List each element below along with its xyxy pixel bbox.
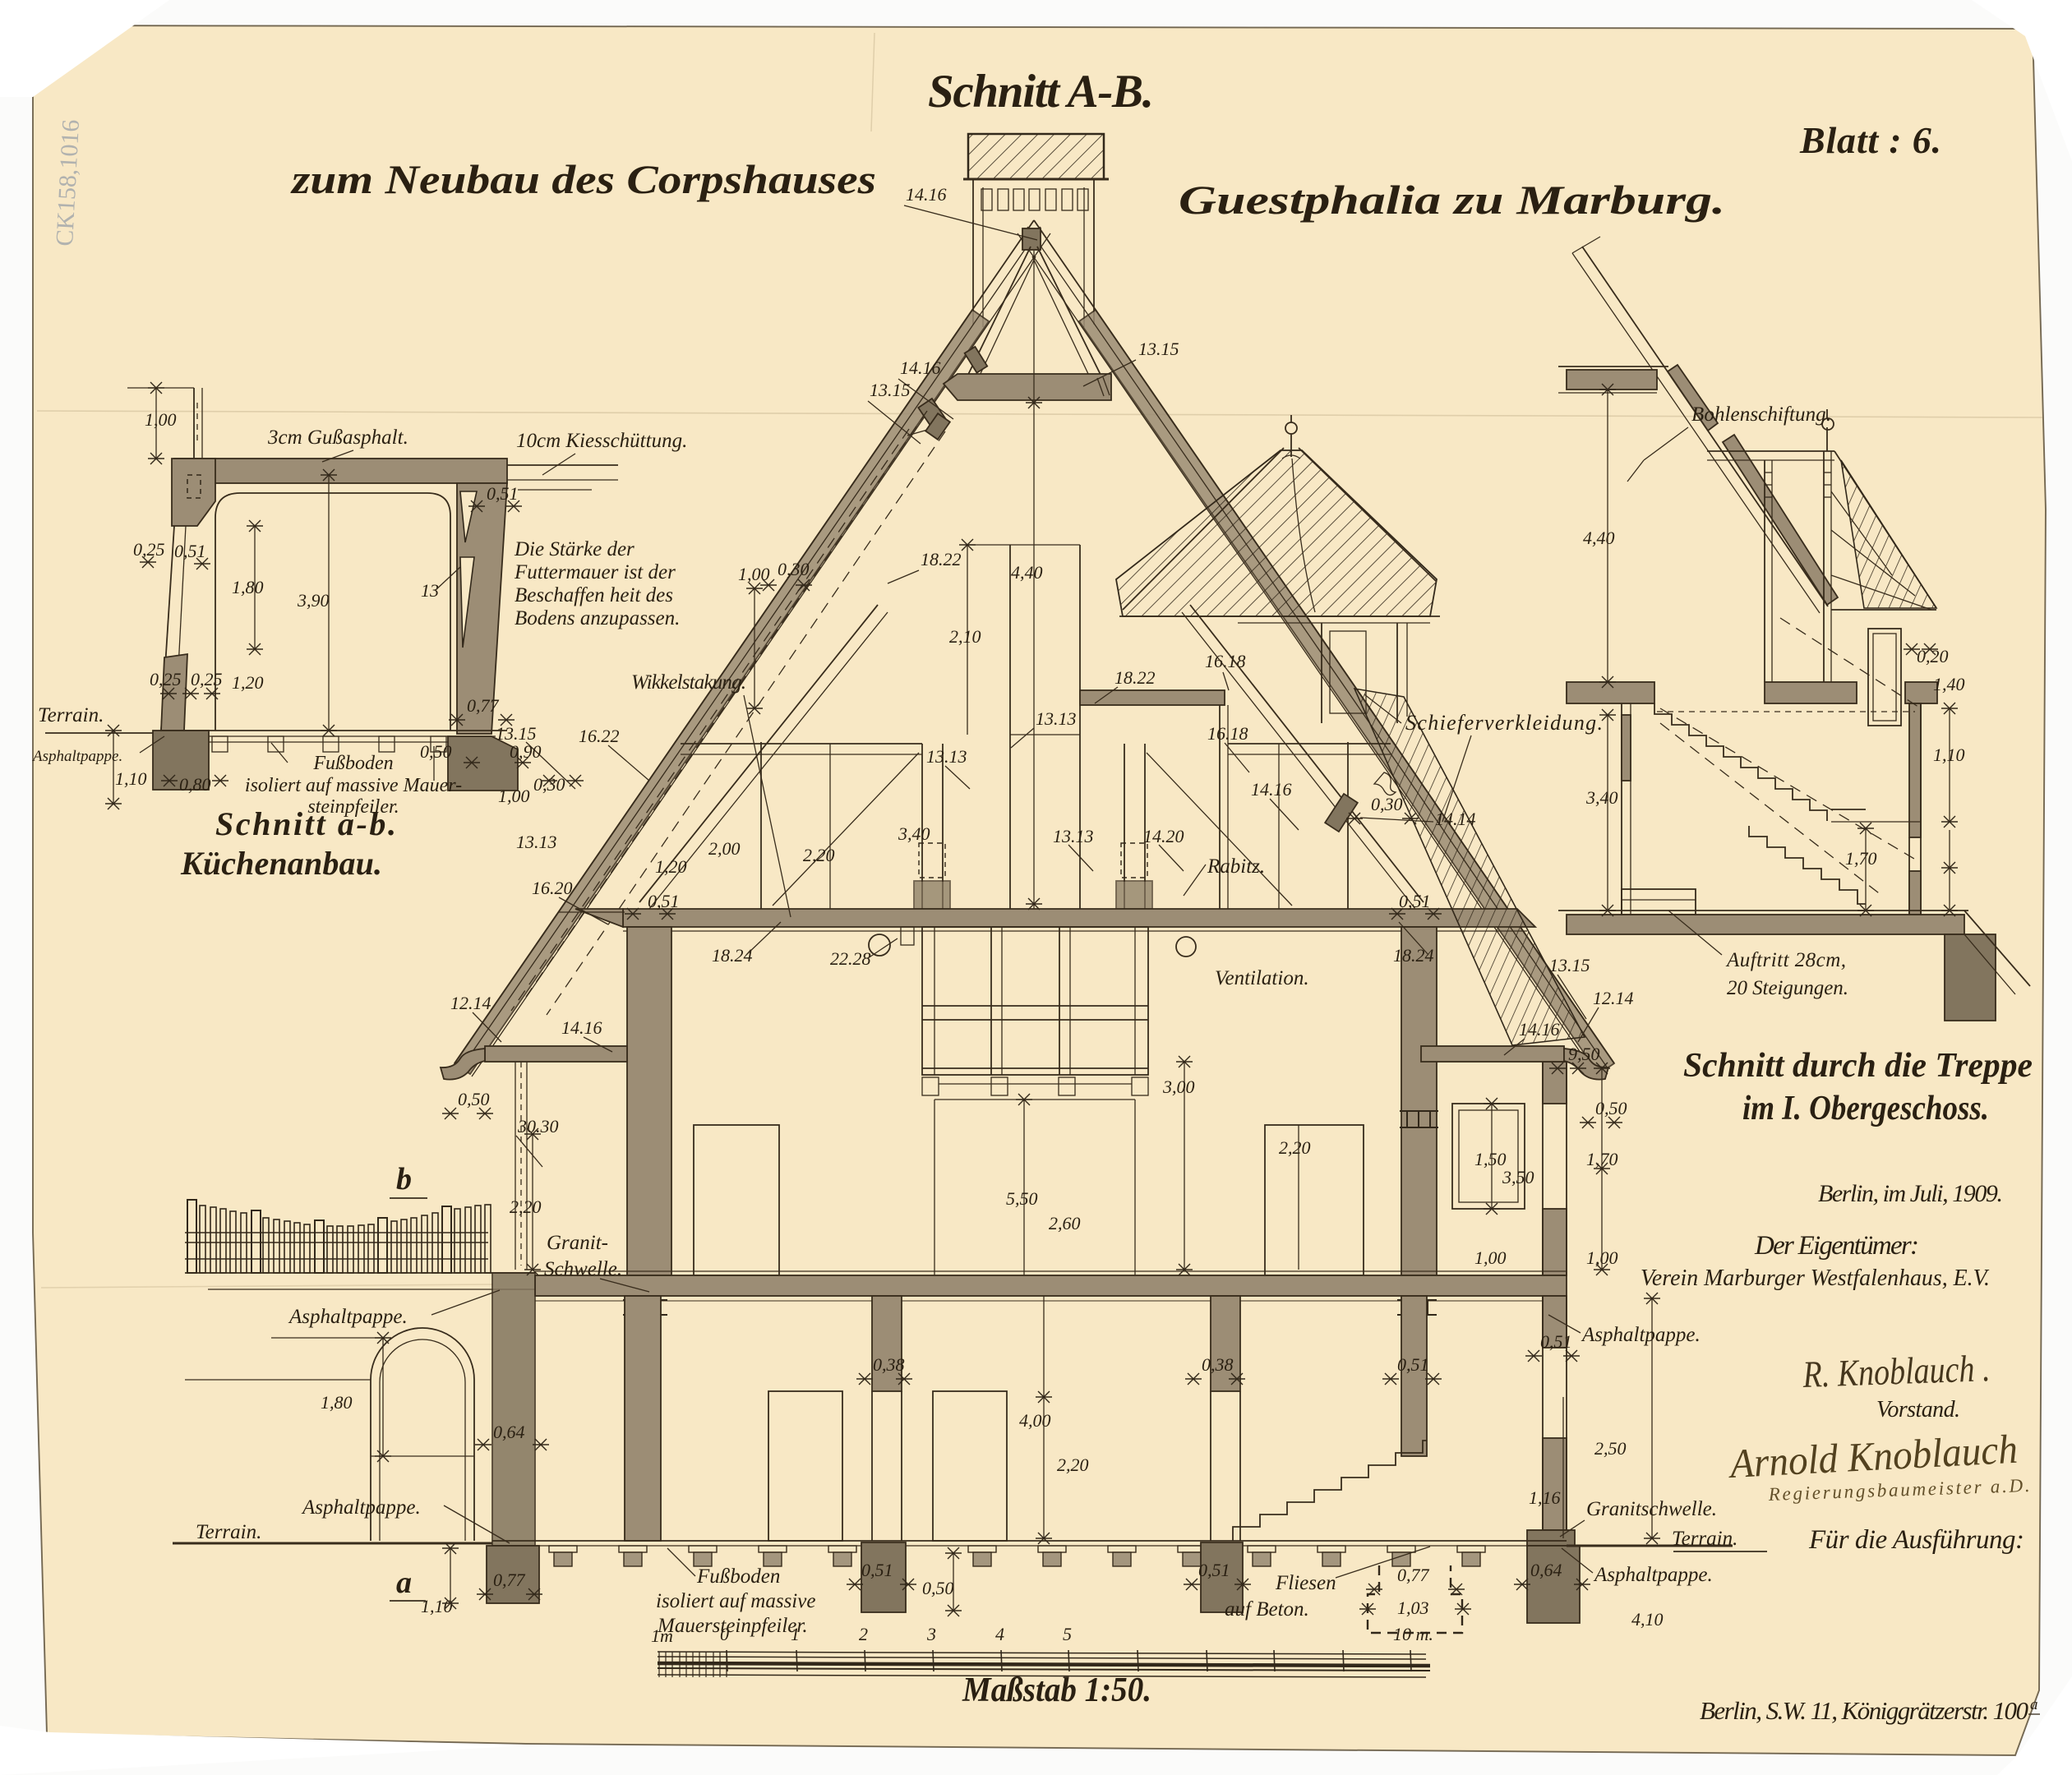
svg-text:5: 5 xyxy=(1063,1624,1072,1644)
svg-text:14.16: 14.16 xyxy=(561,1017,602,1038)
svg-text:Der Eigentümer:: Der Eigentümer: xyxy=(1754,1231,1919,1261)
svg-text:Berlin, im Juli, 1909.: Berlin, im Juli, 1909. xyxy=(1818,1180,2003,1207)
svg-text:Futtermauer ist der: Futtermauer ist der xyxy=(514,561,676,583)
svg-text:3,00: 3,00 xyxy=(1162,1077,1195,1097)
svg-text:10 m.: 10 m. xyxy=(1393,1624,1433,1644)
svg-text:14.16: 14.16 xyxy=(1519,1019,1560,1040)
svg-text:13.13: 13.13 xyxy=(926,746,967,767)
svg-text:Beschaffen heit des: Beschaffen heit des xyxy=(515,584,673,606)
svg-text:14.20: 14.20 xyxy=(1143,826,1184,846)
svg-text:Bohlenschiftung.: Bohlenschiftung. xyxy=(1691,403,1831,426)
svg-text:0,90: 0,90 xyxy=(510,741,542,762)
svg-text:0,38: 0,38 xyxy=(873,1354,905,1375)
svg-text:13.15: 13.15 xyxy=(870,380,911,400)
svg-text:9,50: 9,50 xyxy=(1568,1044,1600,1064)
svg-text:0,25: 0,25 xyxy=(191,669,223,689)
svg-text:0,50: 0,50 xyxy=(420,741,452,762)
svg-text:13.13: 13.13 xyxy=(516,832,557,852)
svg-text:Auftritt 28cm,: Auftritt 28cm, xyxy=(1725,949,1846,971)
svg-text:30.30: 30.30 xyxy=(517,1116,559,1136)
svg-text:Fliesen: Fliesen xyxy=(1275,1572,1336,1594)
svg-text:5,50: 5,50 xyxy=(1006,1188,1038,1209)
svg-text:isoliert auf massive: isoliert auf massive xyxy=(656,1590,815,1612)
svg-text:im I. Obergeschoss.: im I. Obergeschoss. xyxy=(1742,1090,1989,1127)
svg-text:0,77: 0,77 xyxy=(467,695,500,716)
svg-text:Für die Ausführung:: Für die Ausführung: xyxy=(1808,1525,2024,1555)
svg-text:14.16: 14.16 xyxy=(1251,779,1292,800)
svg-text:18.22: 18.22 xyxy=(1114,667,1156,688)
svg-text:18.24: 18.24 xyxy=(712,945,753,966)
svg-text:Schieferverkleidung.: Schieferverkleidung. xyxy=(1405,711,1603,735)
svg-text:18.22: 18.22 xyxy=(921,549,962,569)
svg-text:0,51: 0,51 xyxy=(1540,1331,1572,1352)
svg-text:13.15: 13.15 xyxy=(1138,339,1179,359)
svg-text:1,03: 1,03 xyxy=(1397,1597,1429,1618)
svg-text:14.14: 14.14 xyxy=(1435,809,1476,829)
svg-text:isoliert auf massive Mauer-: isoliert auf massive Mauer- xyxy=(245,775,462,796)
svg-text:1,00: 1,00 xyxy=(1474,1247,1507,1268)
svg-text:Granitschwelle.: Granitschwelle. xyxy=(1586,1498,1717,1520)
svg-text:4,00: 4,00 xyxy=(1019,1410,1051,1431)
svg-text:R. Knoblauch .: R. Knoblauch . xyxy=(1802,1347,1991,1395)
svg-text:Schnitt a-b.: Schnitt a-b. xyxy=(215,805,396,842)
svg-text:1,40: 1,40 xyxy=(1933,674,1965,694)
svg-text:0,51: 0,51 xyxy=(1198,1560,1230,1580)
svg-text:3,40: 3,40 xyxy=(1585,787,1618,808)
svg-text:1,16: 1,16 xyxy=(1529,1487,1561,1508)
svg-text:0,30: 0,30 xyxy=(533,774,565,795)
svg-text:Schwelle.: Schwelle. xyxy=(544,1258,622,1280)
svg-text:1,10: 1,10 xyxy=(115,768,147,789)
svg-text:2,20: 2,20 xyxy=(1279,1137,1311,1158)
svg-text:2,20: 2,20 xyxy=(510,1196,542,1217)
svg-text:0,77: 0,77 xyxy=(1397,1565,1430,1585)
svg-text:2: 2 xyxy=(859,1624,868,1644)
svg-text:12.14: 12.14 xyxy=(1593,988,1634,1008)
svg-text:16.20: 16.20 xyxy=(532,878,573,898)
svg-text:a: a xyxy=(2030,1696,2038,1713)
svg-text:0,30: 0,30 xyxy=(1371,794,1403,814)
svg-text:1: 1 xyxy=(791,1624,800,1644)
svg-text:Guestphalia zu Marburg.: Guestphalia zu Marburg. xyxy=(1179,177,1725,223)
svg-text:Fußboden: Fußboden xyxy=(696,1565,780,1588)
svg-text:1m: 1m xyxy=(651,1625,673,1646)
svg-text:Asphaltpappe.: Asphaltpappe. xyxy=(301,1496,421,1519)
svg-text:4,40: 4,40 xyxy=(1011,562,1043,583)
svg-text:Wikkelstakung.: Wikkelstakung. xyxy=(631,671,746,694)
svg-text:18.24: 18.24 xyxy=(1393,945,1434,966)
svg-text:Terrain.: Terrain. xyxy=(38,704,104,726)
svg-text:0,50: 0,50 xyxy=(922,1578,954,1598)
svg-text:Verein Marburger Westfalenhaus: Verein Marburger Westfalenhaus, E.V. xyxy=(1641,1265,1990,1291)
svg-text:4,40: 4,40 xyxy=(1583,528,1615,548)
svg-text:0,64: 0,64 xyxy=(493,1422,525,1442)
svg-text:zum Neubau des Corpshauses: zum Neubau des Corpshauses xyxy=(290,156,876,202)
svg-text:0,77: 0,77 xyxy=(493,1570,526,1590)
svg-text:Fußboden: Fußboden xyxy=(312,753,393,774)
svg-text:Blatt : 6.: Blatt : 6. xyxy=(1799,119,1941,161)
svg-text:16.18: 16.18 xyxy=(1207,723,1248,744)
svg-text:1,80: 1,80 xyxy=(321,1392,353,1413)
svg-text:Asphaltpappe.: Asphaltpappe. xyxy=(1593,1564,1713,1586)
svg-text:Schnitt durch die Treppe: Schnitt durch die Treppe xyxy=(1683,1047,2033,1085)
svg-text:Vorstand.: Vorstand. xyxy=(1876,1397,1960,1422)
svg-text:b: b xyxy=(396,1162,412,1196)
svg-text:0,51: 0,51 xyxy=(487,483,519,504)
svg-text:Asphaltpappe.: Asphaltpappe. xyxy=(288,1306,408,1328)
svg-text:13.15: 13.15 xyxy=(1549,955,1590,975)
svg-text:Granit-: Granit- xyxy=(547,1232,608,1254)
svg-text:Asphaltpappe.: Asphaltpappe. xyxy=(31,748,122,765)
svg-text:16.22: 16.22 xyxy=(579,726,620,746)
svg-text:Schnitt A-B.: Schnitt A-B. xyxy=(928,66,1154,118)
svg-text:0: 0 xyxy=(720,1624,729,1644)
svg-text:2,50: 2,50 xyxy=(1594,1438,1627,1459)
svg-text:0,51: 0,51 xyxy=(648,891,680,911)
svg-text:1,70: 1,70 xyxy=(1845,848,1877,869)
svg-text:20 Steigungen.: 20 Steigungen. xyxy=(1727,977,1848,999)
svg-text:1,50: 1,50 xyxy=(1474,1149,1507,1169)
svg-text:Mauersteinpfeiler.: Mauersteinpfeiler. xyxy=(657,1615,808,1637)
svg-text:0,25: 0,25 xyxy=(133,539,165,560)
svg-text:1,10: 1,10 xyxy=(1933,745,1965,765)
svg-text:4,10: 4,10 xyxy=(1631,1609,1664,1630)
svg-text:2,60: 2,60 xyxy=(1049,1213,1081,1233)
svg-text:10cm Kiesschüttung.: 10cm Kiesschüttung. xyxy=(516,430,687,452)
svg-text:0,51: 0,51 xyxy=(861,1560,893,1580)
svg-text:0,51: 0,51 xyxy=(1397,1354,1429,1375)
svg-text:1,80: 1,80 xyxy=(232,577,264,597)
svg-text:0,51: 0,51 xyxy=(174,541,206,561)
svg-text:0,25: 0,25 xyxy=(150,669,182,689)
svg-text:a: a xyxy=(396,1565,412,1600)
svg-text:0,50: 0,50 xyxy=(458,1089,490,1109)
svg-text:Terrain.: Terrain. xyxy=(1672,1528,1737,1550)
svg-text:2,00: 2,00 xyxy=(708,838,741,859)
svg-text:4: 4 xyxy=(995,1624,1004,1644)
svg-text:3cm Gußasphalt.: 3cm Gußasphalt. xyxy=(267,426,408,449)
svg-text:14.16: 14.16 xyxy=(900,357,941,378)
svg-text:3: 3 xyxy=(926,1624,936,1644)
svg-text:0,38: 0,38 xyxy=(1202,1354,1234,1375)
svg-text:Maßstab 1:50.: Maßstab 1:50. xyxy=(962,1671,1151,1709)
svg-text:13.13: 13.13 xyxy=(1053,826,1094,846)
svg-text:0,30: 0,30 xyxy=(778,559,810,579)
svg-text:13: 13 xyxy=(421,580,439,601)
svg-text:Rabitz.: Rabitz. xyxy=(1207,855,1265,878)
svg-text:0,50: 0,50 xyxy=(1595,1098,1627,1118)
svg-text:Berlin, S.W. 11, Königgrätzers: Berlin, S.W. 11, Königgrätzerstr. 100 xyxy=(1700,1696,2029,1725)
svg-text:2,10: 2,10 xyxy=(949,626,981,647)
svg-text:0,64: 0,64 xyxy=(1530,1560,1562,1580)
svg-text:2,20: 2,20 xyxy=(803,845,835,865)
svg-text:Die Stärke der: Die Stärke der xyxy=(514,538,635,560)
svg-text:1,20: 1,20 xyxy=(232,672,264,693)
svg-text:13.13: 13.13 xyxy=(1036,708,1077,729)
svg-text:2,20: 2,20 xyxy=(1057,1455,1089,1475)
svg-text:1,00: 1,00 xyxy=(145,409,177,430)
svg-text:12.14: 12.14 xyxy=(450,993,491,1013)
svg-text:0,51: 0,51 xyxy=(1399,891,1431,911)
svg-text:auf Beton.: auf Beton. xyxy=(1225,1598,1309,1621)
svg-text:Bodens anzupassen.: Bodens anzupassen. xyxy=(515,607,680,629)
svg-text:0,80: 0,80 xyxy=(179,774,211,795)
svg-text:3,50: 3,50 xyxy=(1502,1167,1534,1187)
svg-text:22.28: 22.28 xyxy=(830,948,871,969)
svg-text:3,90: 3,90 xyxy=(297,590,330,611)
svg-text:14.16: 14.16 xyxy=(906,184,947,205)
svg-text:Ventilation.: Ventilation. xyxy=(1215,967,1309,989)
svg-text:3,40: 3,40 xyxy=(898,823,930,844)
svg-text:Terrain.: Terrain. xyxy=(196,1521,261,1543)
svg-text:Asphaltpappe.: Asphaltpappe. xyxy=(1581,1324,1701,1346)
svg-text:1,20: 1,20 xyxy=(655,856,687,877)
svg-text:Küchenanbau.: Küchenanbau. xyxy=(180,845,382,882)
